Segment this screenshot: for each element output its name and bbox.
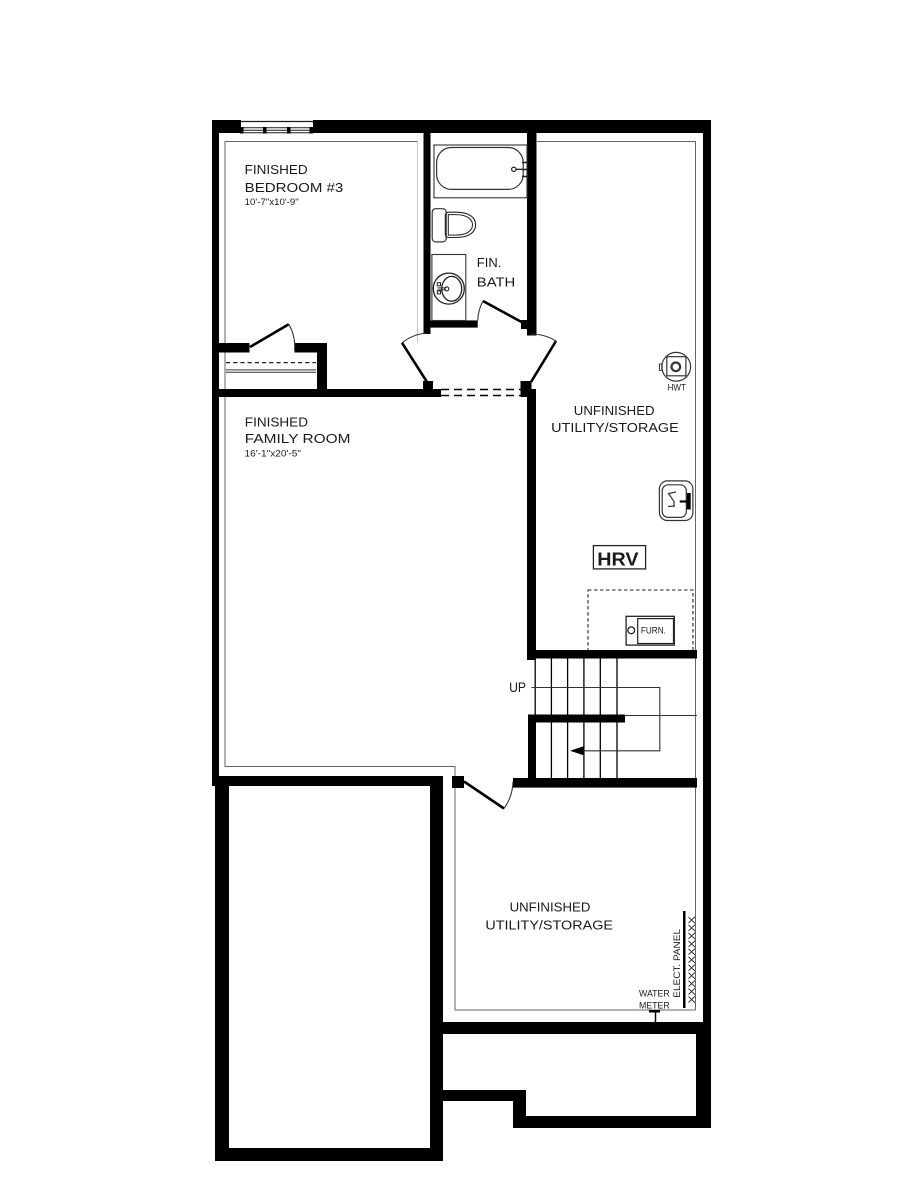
svg-text:UNFINISHED: UNFINISHED (510, 901, 591, 915)
svg-text:UNFINISHED: UNFINISHED (574, 404, 655, 418)
svg-text:FIN.: FIN. (477, 256, 502, 270)
svg-text:FAMILY ROOM: FAMILY ROOM (245, 432, 351, 446)
svg-text:WATER: WATER (639, 989, 670, 999)
svg-text:XXXXXXXXXXX: XXXXXXXXXXX (687, 916, 697, 1004)
svg-text:METER: METER (639, 1001, 670, 1011)
svg-text:FINISHED: FINISHED (245, 416, 308, 430)
svg-text:HWT: HWT (668, 383, 687, 393)
svg-text:UTILITY/STORAGE: UTILITY/STORAGE (485, 919, 613, 933)
svg-text:UP: UP (509, 679, 526, 695)
svg-text:FINISHED: FINISHED (245, 163, 308, 177)
svg-text:BATH: BATH (477, 276, 516, 290)
svg-text:10'-7"x10'-9": 10'-7"x10'-9" (245, 197, 299, 207)
svg-text:FURN.: FURN. (641, 626, 666, 636)
svg-text:ELECT. PANEL: ELECT. PANEL (672, 929, 682, 998)
svg-text:HRV: HRV (597, 550, 638, 570)
svg-text:16'-1"x20'-5": 16'-1"x20'-5" (245, 449, 302, 459)
svg-text:UTILITY/STORAGE: UTILITY/STORAGE (551, 421, 679, 435)
svg-text:BEDROOM #3: BEDROOM #3 (245, 181, 344, 195)
